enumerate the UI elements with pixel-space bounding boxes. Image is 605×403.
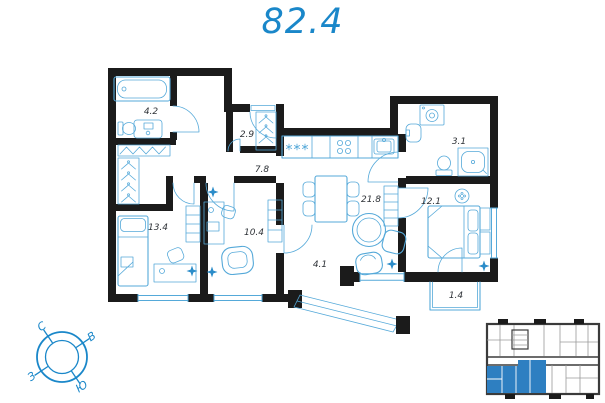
round-sofa-icon (353, 214, 386, 247)
floorplan-page: 82.4 (0, 0, 605, 403)
door-balcony (438, 248, 462, 272)
plant-icon (387, 259, 398, 270)
bathroom-main-fixtures (114, 77, 170, 138)
sink-icon (406, 124, 421, 142)
room-area-label-bathroom-main: 4.2 (144, 107, 159, 117)
kitchen-fixtures (282, 136, 398, 158)
single-bed-icon (118, 216, 148, 286)
door-entry-hall (284, 225, 312, 253)
window-living (360, 272, 404, 282)
door-bathroom-2 (368, 152, 398, 182)
window-bedroom-3 (490, 208, 498, 258)
window-bedroom-1 (138, 294, 188, 302)
floorplan-drawing: 4.22.97.813.410.421.83.112.14.11.4 С В З… (0, 0, 605, 403)
dresser-icon (186, 206, 200, 242)
compass-north: С (35, 319, 49, 334)
floor-minimap (487, 319, 599, 399)
plant-icon (479, 261, 490, 272)
bedroom-1-furniture (118, 206, 200, 286)
toilet-icon (436, 156, 452, 176)
desk-icon (204, 202, 237, 244)
dishwasher-icon (286, 144, 307, 150)
wardrobe-hangers-icon (256, 112, 276, 150)
compass-south: Ю (73, 378, 90, 395)
toilet-icon (118, 122, 136, 135)
side-table-icon (455, 189, 469, 203)
entry-walkway (294, 295, 410, 334)
room-area-label-bedroom-2: 10.4 (244, 228, 264, 238)
room-area-label-kitchen-living: 21.8 (361, 195, 381, 205)
chair-icon (166, 246, 185, 264)
bathroom-2-fixtures (406, 105, 488, 176)
door-bedroom-1 (173, 183, 194, 204)
room-area-label-bedroom-3: 12.1 (421, 197, 441, 207)
stove-icon (337, 140, 350, 153)
dining-table-icon (303, 176, 359, 222)
door-bedroom-2 (206, 183, 234, 211)
door-bathroom-main (173, 106, 199, 132)
kitchen-sink-icon (374, 138, 394, 154)
hall-wardrobe-icon (118, 158, 139, 204)
compass-east: В (85, 329, 99, 344)
room-area-label-bathroom-2: 3.1 (452, 137, 466, 147)
nightstand-icon (480, 208, 490, 230)
plant-icon (207, 267, 218, 278)
armchair-icon (221, 245, 255, 275)
room-area-label-hallway: 7.8 (255, 165, 270, 175)
compass-west: З (25, 369, 38, 384)
window-bedroom-2 (214, 294, 262, 302)
sink-icon (134, 120, 162, 138)
washing-machine-icon (420, 105, 444, 125)
room-area-label-entry-hall: 4.1 (313, 260, 327, 270)
shower-icon (458, 148, 488, 176)
tv-stand-icon (384, 186, 398, 226)
desk-icon (154, 246, 196, 282)
compass-rose: С В З Ю (25, 319, 98, 395)
room-area-label-wardrobe: 2.9 (240, 130, 255, 140)
room-area-label-bedroom-1: 13.4 (148, 223, 168, 233)
room-area-label-balcony: 1.4 (449, 291, 464, 301)
double-bed-icon (428, 206, 480, 258)
nightstand-icon (480, 232, 490, 254)
wardrobe-fixtures (256, 112, 276, 150)
hallway-closet (118, 145, 170, 204)
